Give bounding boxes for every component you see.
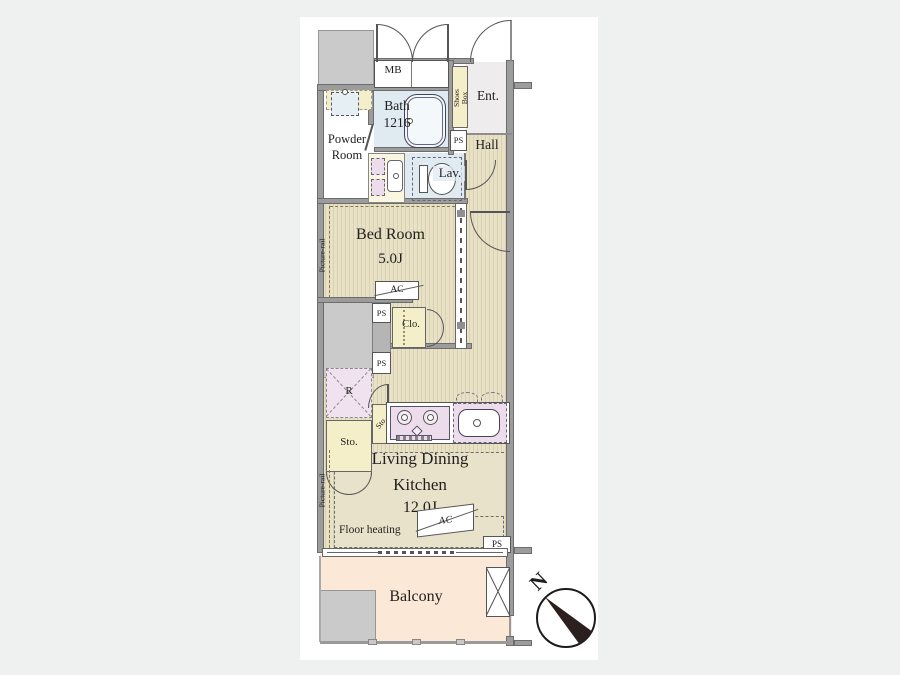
ldk-label-line1: Living Dining (334, 449, 506, 468)
wall-stub-top (514, 82, 532, 89)
structure-block-top (318, 30, 374, 90)
wall-right-thin (509, 616, 511, 638)
balcony-rail-left (319, 556, 321, 642)
ac-label: AC (418, 512, 473, 530)
rail-post (456, 639, 465, 645)
entrance-label: Ent. (468, 88, 508, 103)
burner (423, 410, 438, 425)
grill (396, 435, 432, 441)
burner-inner (401, 414, 408, 421)
picture-rail-label-ldk: Picture-rail (319, 461, 330, 521)
sink-faucet (473, 419, 481, 427)
sink-bump (481, 392, 503, 404)
washer-faucet (342, 89, 348, 95)
vanity-unit (368, 153, 405, 203)
floor-plan-page: MB Bath 1216 Powder Room Lav. Shoes Box … (0, 0, 900, 675)
toilet-tank (419, 165, 428, 193)
closet-label: Clo. (394, 319, 428, 331)
picture-rail-label-bedroom: Picture-rail (319, 226, 330, 286)
storage-large-label: Sto. (326, 436, 372, 448)
burner-inner (427, 414, 434, 421)
ac-unit-bedroom: AC (375, 281, 419, 300)
bath-label: Bath (375, 98, 419, 113)
evacuation-hatch (486, 567, 510, 617)
hall-label: Hall (466, 137, 508, 152)
rail-post (412, 639, 421, 645)
ps-box-lower: PS (372, 352, 391, 374)
sliding-partition (455, 203, 467, 349)
rail-post (368, 639, 377, 645)
structure-block-mid (318, 298, 374, 378)
balcony-label: Balcony (356, 588, 476, 606)
vanity-sink (387, 160, 403, 192)
bath-size-label: 1216 (375, 115, 419, 130)
ps-label: PS (454, 135, 463, 145)
sink-bump (456, 392, 478, 404)
meter-box-divider (411, 61, 412, 87)
window-dashed-track (378, 551, 456, 554)
picture-rail-line-bedroom-top (330, 206, 455, 208)
stove (390, 406, 450, 440)
partition-panel (457, 210, 465, 217)
lavatory-label: Lav. (433, 166, 467, 181)
washing-machine (331, 92, 359, 116)
balcony-window (322, 548, 508, 557)
wall-stub-bottom (514, 640, 532, 646)
powder-room-label-2: Room (322, 148, 372, 162)
vanity-cabinet (371, 158, 385, 175)
partition-panel (457, 322, 465, 329)
ps-label: PS (377, 308, 386, 318)
bedroom-label: Bed Room (324, 226, 457, 244)
ps-box-entry: PS (450, 130, 467, 151)
ps-label: PS (377, 358, 386, 368)
vanity-faucet (393, 173, 399, 179)
shoes-box: Shoes Box (452, 66, 468, 128)
vanity-cabinet (371, 179, 385, 196)
bedroom-size-label: 5.0J (324, 251, 457, 268)
wall-stub-mid (514, 547, 532, 554)
burner (397, 410, 412, 425)
meter-box-label: MB (376, 64, 410, 76)
ps-box-upper: PS (372, 303, 391, 323)
powder-room-label-1: Powder (322, 132, 372, 146)
compass-rose (532, 585, 602, 655)
ldk-label-line2: Kitchen (334, 475, 506, 494)
refrigerator-label: R (326, 385, 372, 397)
compass (532, 585, 602, 655)
entrance-step-line (466, 133, 512, 135)
ac-label: AC (376, 285, 418, 296)
shoes-box-label: Shoes Box (453, 70, 467, 126)
